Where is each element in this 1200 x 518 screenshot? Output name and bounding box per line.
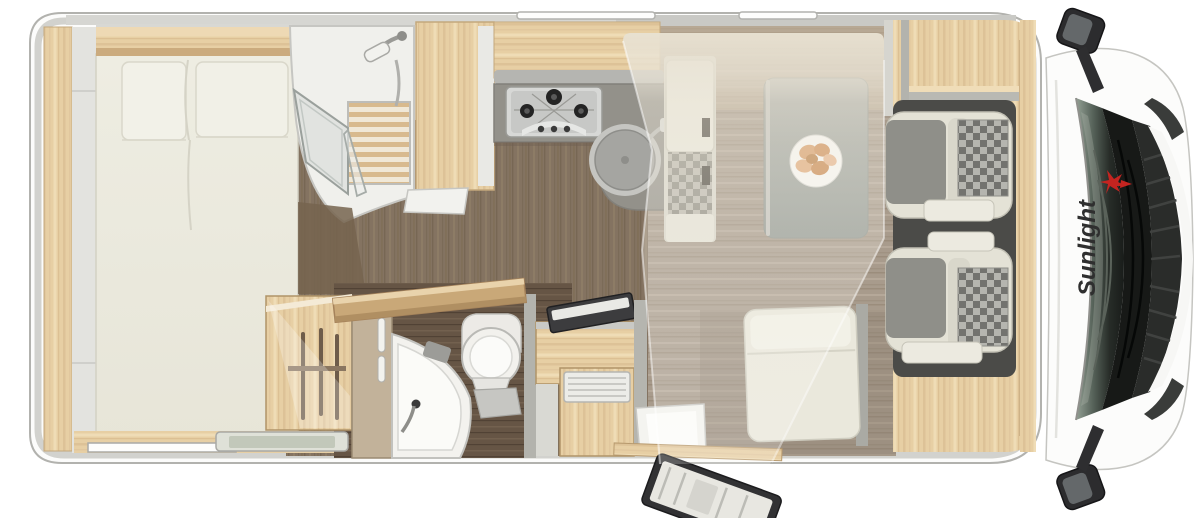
svg-text:Sunlight: Sunlight bbox=[1074, 199, 1101, 296]
